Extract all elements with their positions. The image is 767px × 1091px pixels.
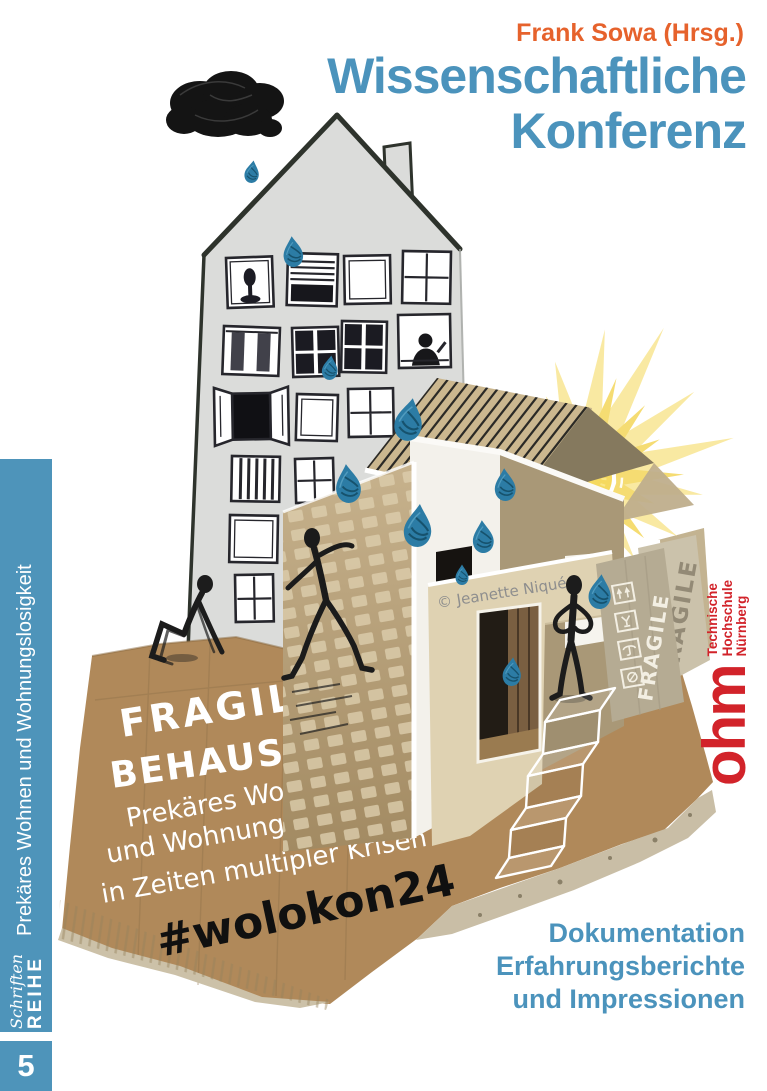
ohm-wordmark: ohm — [702, 665, 749, 786]
cover-subtitle-line3: und Impressionen — [496, 983, 745, 1016]
cover-title-line2: Konferenz — [327, 104, 746, 159]
cover-subtitle: Dokumentation Erfahrungsberichte und Imp… — [496, 917, 745, 1016]
editor-name: Frank Sowa (Hrsg.) — [516, 19, 744, 48]
cover-subtitle-line2: Erfahrungsberichte — [496, 950, 745, 983]
cover-subtitle-line1: Dokumentation — [496, 917, 745, 950]
cover-title-line1: Wissenschaftliche — [327, 49, 746, 104]
rain-cloud-illustration — [166, 71, 284, 137]
institution-line2: Hochschule — [721, 580, 736, 657]
institution-line3: Nürnberg — [735, 580, 750, 657]
series-word: REIHE — [26, 954, 46, 1029]
book-cover: FRAGILE BEHAUSUNGEN Prekäres Wohnen und … — [0, 0, 767, 1091]
cover-title: Wissenschaftliche Konferenz — [327, 49, 746, 159]
institution-name: Technische Hochschule Nürnberg — [706, 580, 750, 657]
volume-number-badge: 5 — [0, 1041, 52, 1091]
series-name: Schriften — [9, 954, 26, 1029]
institution-line1: Technische — [706, 580, 721, 657]
series-topic-vertical: Prekäres Wohnen und Wohnungslosigkeit — [14, 564, 37, 936]
ohm-logo: ohm Technische Hochschule Nürnberg — [702, 580, 750, 786]
series-label: Schriften REIHE — [9, 954, 46, 1029]
